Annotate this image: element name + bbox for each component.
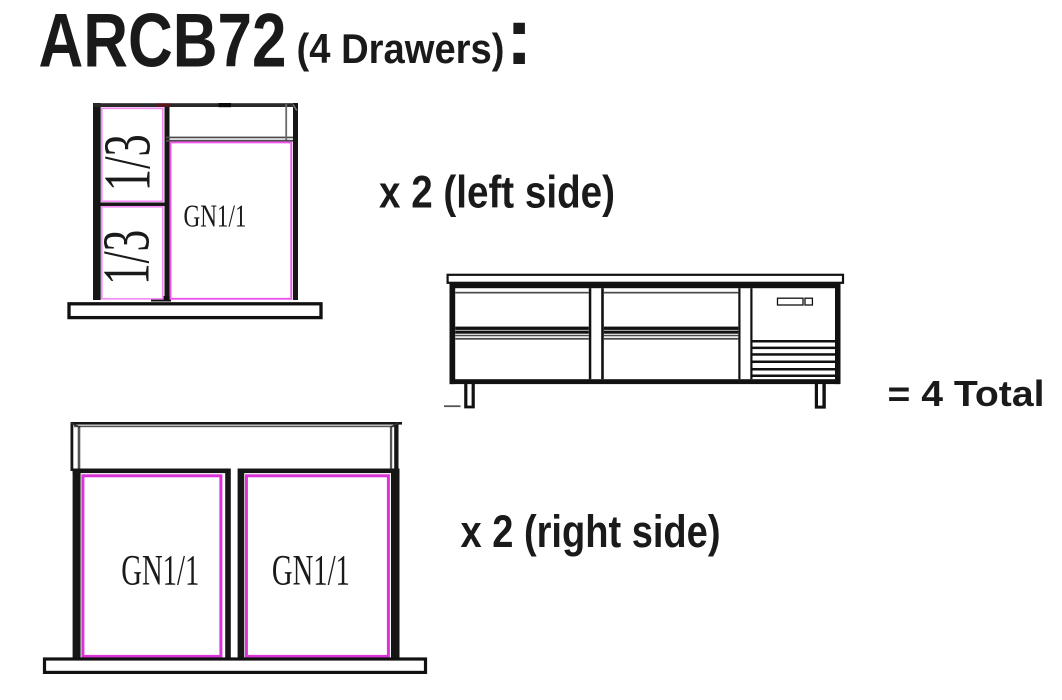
svg-text:(4 Drawers): (4 Drawers) [297,25,505,72]
svg-text:x 2 (right side): x 2 (right side) [461,506,721,557]
svg-text:1/3: 1/3 [90,230,164,285]
svg-text:1/3: 1/3 [91,134,165,191]
svg-text:= 4 Total: = 4 Total [888,373,1045,414]
svg-text:x 2 (left side): x 2 (left side) [379,167,615,218]
svg-text:ARCB72: ARCB72 [39,0,287,84]
svg-text:GN1/1: GN1/1 [272,548,350,595]
svg-text::: : [506,0,533,82]
svg-text:GN1/1: GN1/1 [184,198,247,234]
svg-text:GN1/1: GN1/1 [121,548,199,595]
